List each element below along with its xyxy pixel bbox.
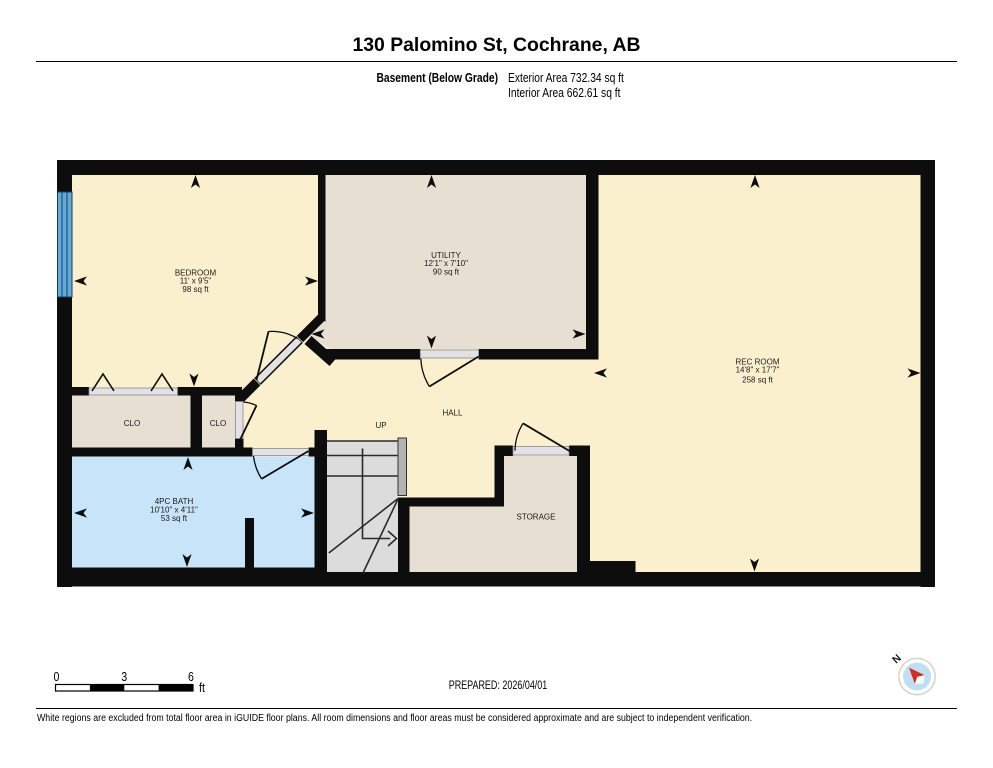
svg-text:14'8" x 17'7": 14'8" x 17'7" (736, 366, 780, 375)
svg-text:ft: ft (199, 681, 206, 695)
svg-text:6: 6 (188, 670, 194, 684)
svg-text:CLO: CLO (124, 419, 140, 428)
svg-text:N: N (890, 652, 904, 666)
svg-text:STORAGE: STORAGE (517, 513, 556, 522)
svg-text:90 sq ft: 90 sq ft (433, 268, 460, 277)
svg-text:258 sq ft: 258 sq ft (742, 376, 773, 385)
svg-text:CLO: CLO (210, 419, 226, 428)
svg-text:HALL: HALL (442, 409, 463, 418)
svg-text:UP: UP (375, 421, 386, 430)
svg-text:3: 3 (121, 670, 127, 684)
svg-text:98 sq ft: 98 sq ft (182, 285, 209, 294)
svg-text:53 sq ft: 53 sq ft (161, 514, 188, 523)
svg-text:0: 0 (54, 670, 60, 684)
